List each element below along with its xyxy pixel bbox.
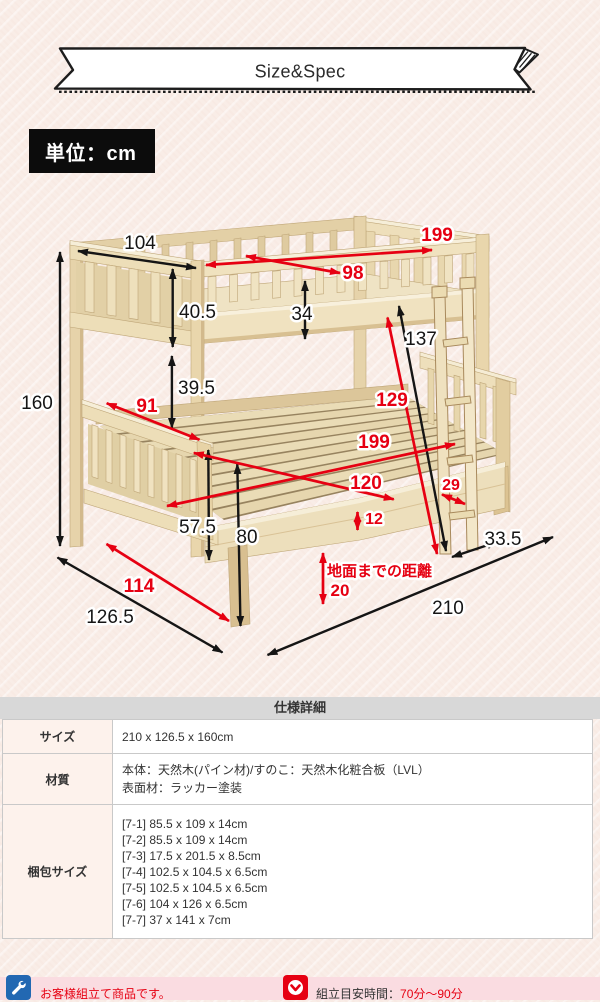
svg-text:20: 20 xyxy=(331,581,350,600)
svg-text:34: 34 xyxy=(291,304,313,325)
svg-text:91: 91 xyxy=(136,396,158,417)
svg-text:210: 210 xyxy=(432,598,464,619)
svg-text:80: 80 xyxy=(236,527,257,548)
svg-text:114: 114 xyxy=(124,576,155,597)
svg-text:33.5: 33.5 xyxy=(485,529,522,550)
svg-text:57.5: 57.5 xyxy=(179,517,216,538)
svg-text:126.5: 126.5 xyxy=(86,607,134,628)
svg-text:120: 120 xyxy=(350,473,382,494)
svg-text:199: 199 xyxy=(358,432,390,453)
svg-text:137: 137 xyxy=(405,329,437,350)
svg-text:104: 104 xyxy=(124,233,156,254)
svg-text:単位：cm: 単位：cm xyxy=(45,141,136,165)
svg-text:129: 129 xyxy=(376,390,408,411)
svg-text:Size&Spec: Size&Spec xyxy=(255,62,346,82)
svg-text:98: 98 xyxy=(342,263,363,284)
svg-text:地面までの距離: 地面までの距離 xyxy=(327,562,432,580)
svg-text:29: 29 xyxy=(442,477,460,494)
svg-text:39.5: 39.5 xyxy=(178,378,215,399)
svg-text:40.5: 40.5 xyxy=(179,302,216,323)
svg-text:12: 12 xyxy=(365,511,383,528)
svg-text:199: 199 xyxy=(421,225,453,246)
svg-text:160: 160 xyxy=(21,393,53,414)
